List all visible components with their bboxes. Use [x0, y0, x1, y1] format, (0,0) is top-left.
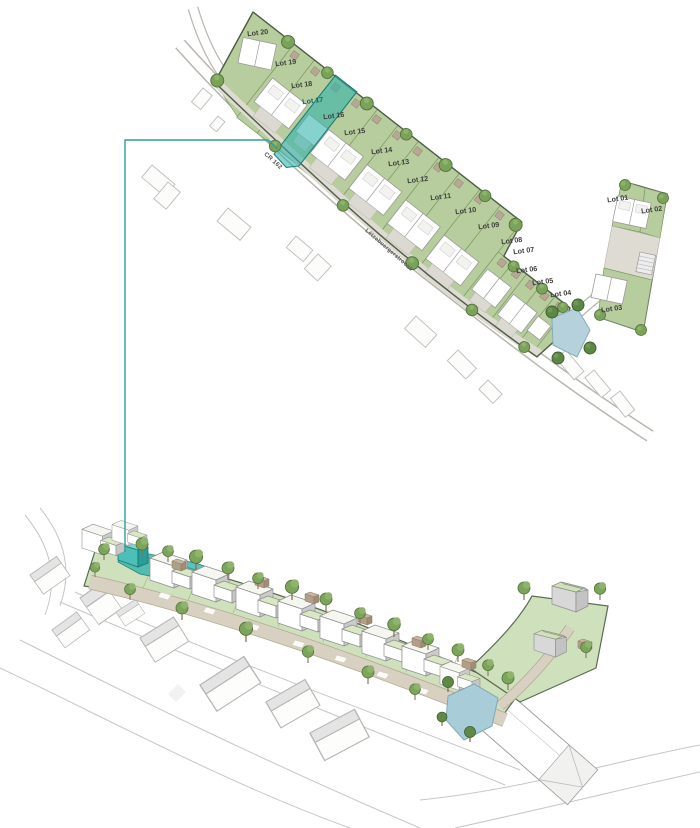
lot-label-08[interactable]: Lot 08	[501, 235, 523, 247]
lot-label-06[interactable]: Lot 06	[516, 264, 538, 276]
lot-label-04[interactable]: Lot 04	[550, 288, 572, 300]
plan-site-strip	[187, 8, 604, 368]
lot-label-05[interactable]: Lot 05	[532, 276, 554, 288]
lot-label-07[interactable]: Lot 07	[513, 245, 535, 257]
lot-17-connector-line	[125, 140, 268, 552]
site-plan-illustration: Lot 01 Lot 02 Lot 03 Lot 04 Lot 05 Lot 0…	[0, 0, 700, 828]
drawing-canvas: Lot 01 Lot 02 Lot 03 Lot 04 Lot 05 Lot 0…	[0, 0, 700, 828]
